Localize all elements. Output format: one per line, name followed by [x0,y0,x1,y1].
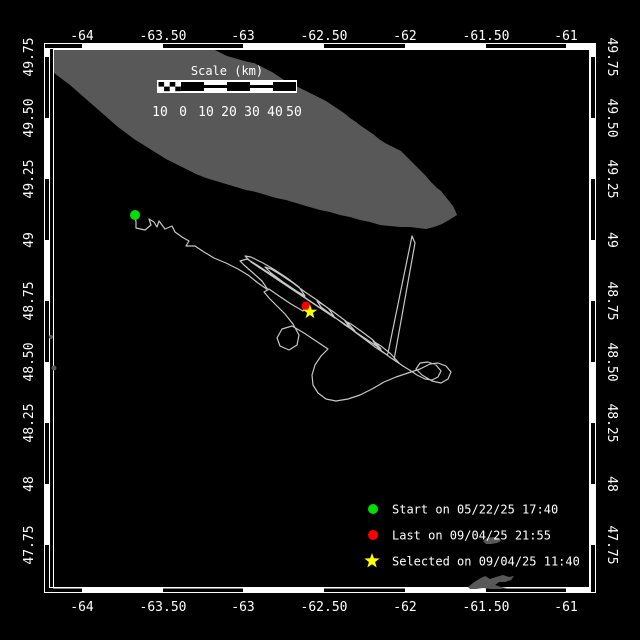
drifter-track-line [135,215,451,401]
drifter-track-map: Scale (km)1001020304050-64-63.50-63-62.5… [0,0,640,640]
axis-label-right-49.25: 49.25 [604,159,619,198]
scale-bar-tick-label: 20 [221,105,237,120]
scale-bar-tick-label: 50 [286,105,302,120]
axis-label-top--63: -63 [231,29,254,44]
legend-marker-0 [368,504,378,514]
axis-label-bottom--62.50: -62.50 [301,600,348,615]
landmass-magdalen-islands [468,575,514,589]
legend: Start on 05/22/25 17:40Last on 09/04/25 … [364,503,579,569]
axis-label-right-48: 48 [604,476,619,492]
plot-area [54,50,457,401]
legend-label-1: Last on 09/04/25 21:55 [392,529,551,543]
axis-label-top--61: -61 [554,29,577,44]
axis-label-right-47.75: 47.75 [604,525,619,564]
legend-label-0: Start on 05/22/25 17:40 [392,503,558,517]
axis-label-right-49.75: 49.75 [604,37,619,76]
axis-label-bottom--61.50: -61.50 [463,600,510,615]
axis-label-top--63.50: -63.50 [140,29,187,44]
axis-label-top--64: -64 [70,29,94,44]
axis-label-right-49.50: 49.50 [604,98,619,137]
axis-label-top--62.50: -62.50 [301,29,348,44]
axis-label-bottom--63: -63 [231,600,254,615]
start-marker-dot [130,210,140,220]
axis-label-left-49.75: 49.75 [22,37,37,76]
axis-label-right-48.50: 48.50 [604,342,619,381]
legend-marker-1 [368,530,378,540]
axis-label-bottom--64: -64 [70,600,94,615]
coast-speck-1 [52,366,57,371]
axis-label-top--62: -62 [393,29,416,44]
scale-bar-tick-label: 10 [152,105,168,120]
axis-label-left-48: 48 [22,476,37,492]
legend-label-2: Selected on 09/04/25 11:40 [392,555,580,569]
axis-label-left-48.50: 48.50 [22,342,37,381]
scale-bar-title: Scale (km) [191,64,263,78]
axis-label-top--61.50: -61.50 [463,29,510,44]
scale-bar-tick-label: 40 [267,105,283,120]
axis-label-right-48.25: 48.25 [604,403,619,442]
axis-label-bottom--62: -62 [393,600,416,615]
scale-bar-tick-label: 30 [244,105,260,120]
axis-label-left-49.25: 49.25 [22,159,37,198]
legend-marker-2 [364,553,379,568]
scale-bar-tick-label: 0 [179,105,187,120]
axis-label-right-48.75: 48.75 [604,281,619,320]
axis-label-left-48.25: 48.25 [22,403,37,442]
coast-speck-0 [49,335,53,339]
axis-label-left-48.75: 48.75 [22,281,37,320]
axis-label-left-49: 49 [22,232,37,248]
map-canvas: Scale (km)1001020304050-64-63.50-63-62.5… [0,0,640,640]
axis-label-left-49.50: 49.50 [22,98,37,137]
axis-label-left-47.75: 47.75 [22,525,37,564]
scale-bar-tick-label: 10 [198,105,214,120]
axis-label-bottom--61: -61 [554,600,577,615]
axis-label-right-49: 49 [604,232,619,248]
axis-label-bottom--63.50: -63.50 [140,600,187,615]
